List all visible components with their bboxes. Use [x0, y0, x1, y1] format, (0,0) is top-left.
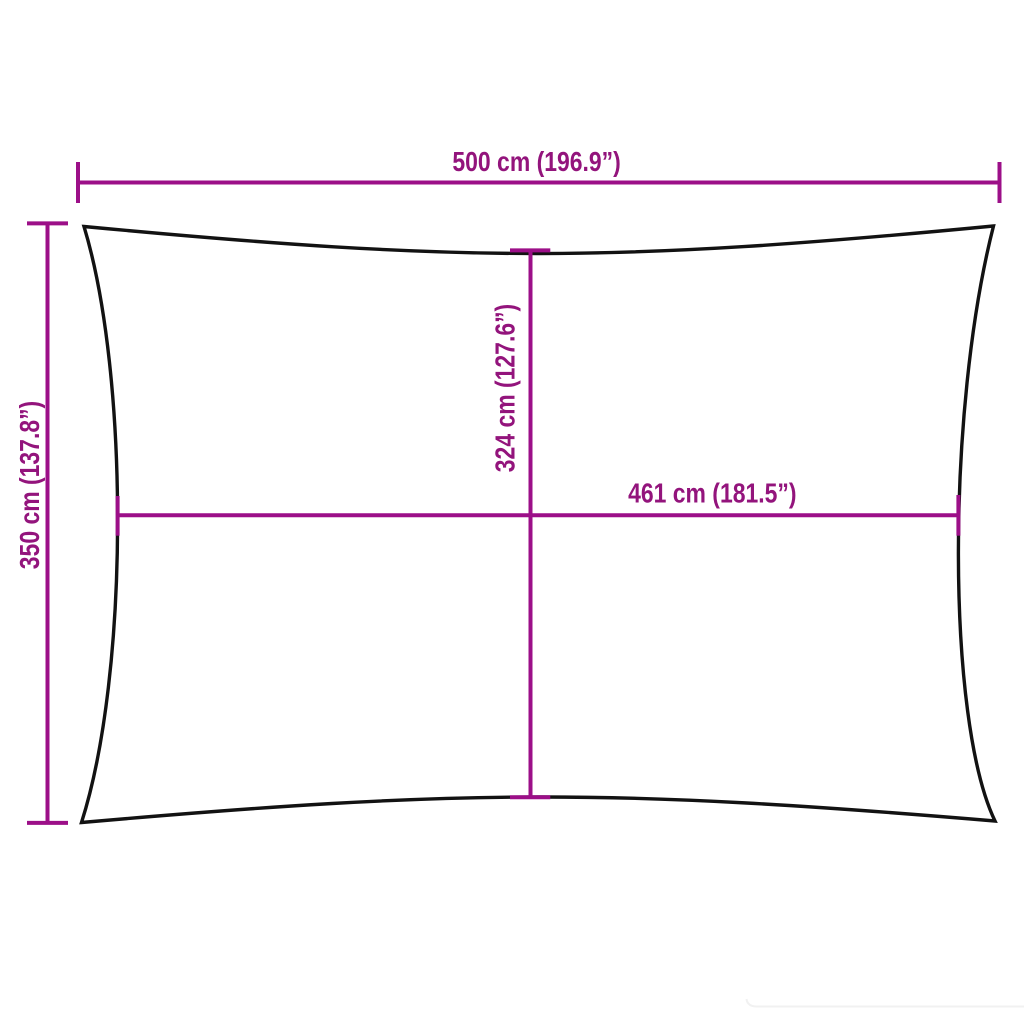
svg-text:350 cm (137.8”): 350 cm (137.8”) — [15, 401, 46, 569]
svg-text:324 cm (127.6”): 324 cm (127.6”) — [490, 304, 521, 472]
svg-text:500 cm (196.9”): 500 cm (196.9”) — [452, 147, 620, 178]
svg-text:461 cm (181.5”): 461 cm (181.5”) — [628, 479, 796, 510]
